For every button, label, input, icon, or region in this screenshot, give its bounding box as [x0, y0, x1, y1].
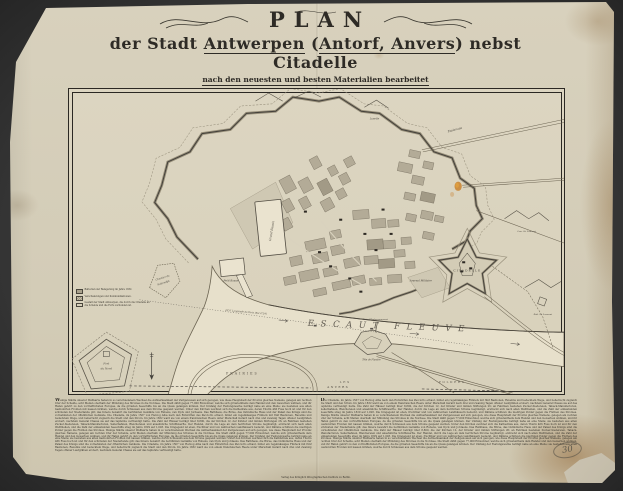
fort-nord-label-1: Fort	[102, 362, 110, 366]
anvers-label: ANVERS	[326, 385, 349, 389]
title-line2-pre: der Stadt	[110, 34, 204, 53]
statistical-notes: Wenige Städte unserer Weltkarte haben in…	[55, 398, 577, 476]
legend-text-3: Gestalt der Stadt Antwerpen, die durch d…	[85, 302, 151, 308]
title-line2-antwerpen: Antwerpen	[204, 34, 305, 54]
city-map-drawing: ESCAUT FLEUVE Grand Bassin Petit Bassin …	[69, 89, 564, 394]
prairies-label: PRAIRIES	[226, 372, 259, 376]
photographed-map-sheet: PLAN der Stadt Antwerpen (Antorf, Anvers…	[0, 0, 623, 491]
legend-item: Verschanzungen und Kommunikationen.	[76, 296, 150, 301]
lun-st-laurent-label: Lun. St. Laurent	[516, 230, 536, 233]
tete-flandre-label: Tête de Flandre	[362, 359, 381, 362]
legend-text-2: Verschanzungen und Kommunikationen.	[85, 296, 132, 299]
tete-embarquement-label: Tête d'Embarquement	[363, 318, 388, 321]
map-title-line2: der Stadt Antwerpen (Antorf, Anvers) neb…	[68, 34, 563, 72]
map-subtitle-text: nach den neuesten und besten Materialien…	[202, 75, 428, 86]
citadelle	[429, 228, 507, 302]
polders-label: POLDERS	[439, 380, 466, 384]
map-legend: Batterien der Belagerung im Jahre 1832. …	[76, 289, 150, 309]
title-line2-mid: (	[305, 34, 319, 53]
map-title-main: PLAN	[68, 8, 563, 32]
title-line2-antorf-anvers: Antorf, Anvers	[319, 34, 455, 54]
map-frame: ESCAUT FLEUVE Grand Bassin Petit Bassin …	[68, 88, 565, 395]
st-laurent-outworks	[505, 211, 561, 306]
citadelle-label: CITADELLE	[453, 268, 481, 272]
glacis-outline	[142, 89, 494, 263]
esplanade-label: Esplanade	[446, 126, 463, 134]
notes-column-1: Wenige Städte unserer Weltkarte haben in…	[55, 398, 312, 476]
legend-item: Gestalt der Stadt Antwerpen, die durch d…	[76, 302, 150, 308]
legend-text-1: Batterien der Belagerung im Jahre 1832.	[85, 289, 133, 292]
publisher-imprint: Verlag des Königlich lithographischen In…	[55, 476, 577, 479]
arsenal-label: Arsenal Militaire	[409, 279, 433, 283]
legend-symbol-outline	[76, 303, 83, 308]
legend-symbol-entrenchment	[76, 296, 83, 301]
north-arrow-icon	[149, 352, 154, 379]
legend-item: Batterien der Belagerung im Jahre 1832.	[76, 289, 150, 294]
les-label: LES	[340, 380, 351, 384]
hand-coloured-spot	[450, 182, 462, 197]
legend-symbol-battery	[76, 289, 83, 294]
paper-sheet: PLAN der Stadt Antwerpen (Antorf, Anvers…	[8, 2, 616, 486]
map-subtitle: nach den neuesten und besten Materialien…	[68, 75, 563, 84]
red-st-laurent-label: Réd. St. Laurent	[533, 313, 553, 316]
fort-nord-label-2: du Nord	[101, 367, 113, 371]
petit-bassin-label: Petit Bassin	[223, 279, 240, 283]
notes-column-2: Die Citadelle, im Jahre 1567 von Herzog …	[321, 398, 578, 476]
latitude-label: Latitude Nord 51°13′ N.	[325, 390, 351, 393]
lunette-label: Lunette	[369, 117, 380, 120]
